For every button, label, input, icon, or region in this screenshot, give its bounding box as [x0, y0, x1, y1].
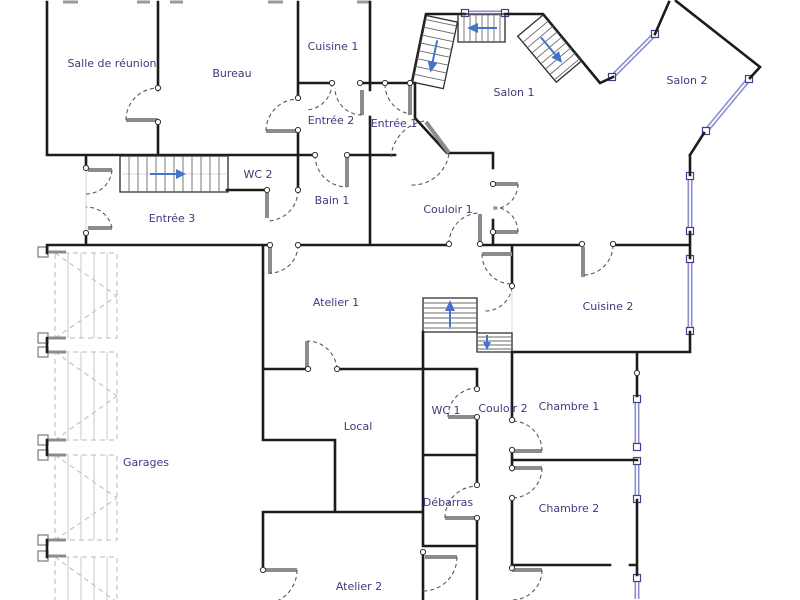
room-label-bureau: Bureau: [212, 67, 251, 80]
room-label-wc-2: WC 2: [243, 168, 272, 181]
stair-flight-left: [412, 15, 457, 88]
floor-plan: Salle de réunion Bureau Cuisine 1 Entrée…: [0, 0, 800, 600]
stair-arrow-shaft: [541, 38, 555, 55]
stair-arrow-shaft: [433, 40, 438, 62]
stair-arrow-head: [176, 169, 186, 179]
room-label-atelier-2: Atelier 2: [336, 580, 382, 593]
garage-bay-slats: [68, 253, 107, 600]
garage-bay-outline: [55, 253, 117, 600]
room-label-garages: Garages: [123, 456, 169, 469]
room-label-wc-1: WC 1: [431, 404, 460, 417]
room-label-entree-3: Entrée 3: [149, 212, 196, 225]
stair-arrow-head: [467, 23, 478, 33]
room-label-chambre-2: Chambre 2: [539, 502, 600, 515]
room-label-chambre-1: Chambre 1: [539, 400, 600, 413]
room-labels: Salle de réunion Bureau Cuisine 1 Entrée…: [67, 40, 707, 593]
room-label-atelier-1: Atelier 1: [313, 296, 359, 309]
staircase-central-down: [477, 333, 512, 352]
room-label-salle-de-reunion: Salle de réunion: [67, 57, 156, 70]
stair-arrow-head: [445, 300, 455, 311]
room-label-entree-1: Entrée 1: [371, 117, 418, 130]
garage-hinge-stubs: [48, 252, 66, 556]
stair-flight-middle: [458, 14, 505, 42]
doors: [83, 80, 639, 600]
walls: [47, 1, 760, 600]
garage-hinge-plates: [38, 247, 48, 561]
room-label-cuisine-1: Cuisine 1: [308, 40, 359, 53]
room-label-debarras: Débarras: [423, 496, 474, 509]
room-label-couloir-2: Couloir 2: [478, 402, 527, 415]
room-label-couloir-1: Couloir 1: [423, 203, 472, 216]
staircase-top: [412, 14, 582, 89]
room-label-cuisine-2: Cuisine 2: [583, 300, 634, 313]
garage-doors: [38, 247, 117, 600]
floor-plan-page: Salle de réunion Bureau Cuisine 1 Entrée…: [0, 0, 800, 600]
room-label-local: Local: [344, 420, 373, 433]
room-label-entree-2: Entrée 2: [308, 114, 355, 127]
room-label-salon-1: Salon 1: [494, 86, 535, 99]
staircase-central-up: [423, 298, 477, 332]
stair-flight-right: [518, 15, 582, 82]
room-label-salon-2: Salon 2: [667, 74, 708, 87]
room-label-bain-1: Bain 1: [315, 194, 350, 207]
stair-arrow-head: [425, 61, 437, 74]
